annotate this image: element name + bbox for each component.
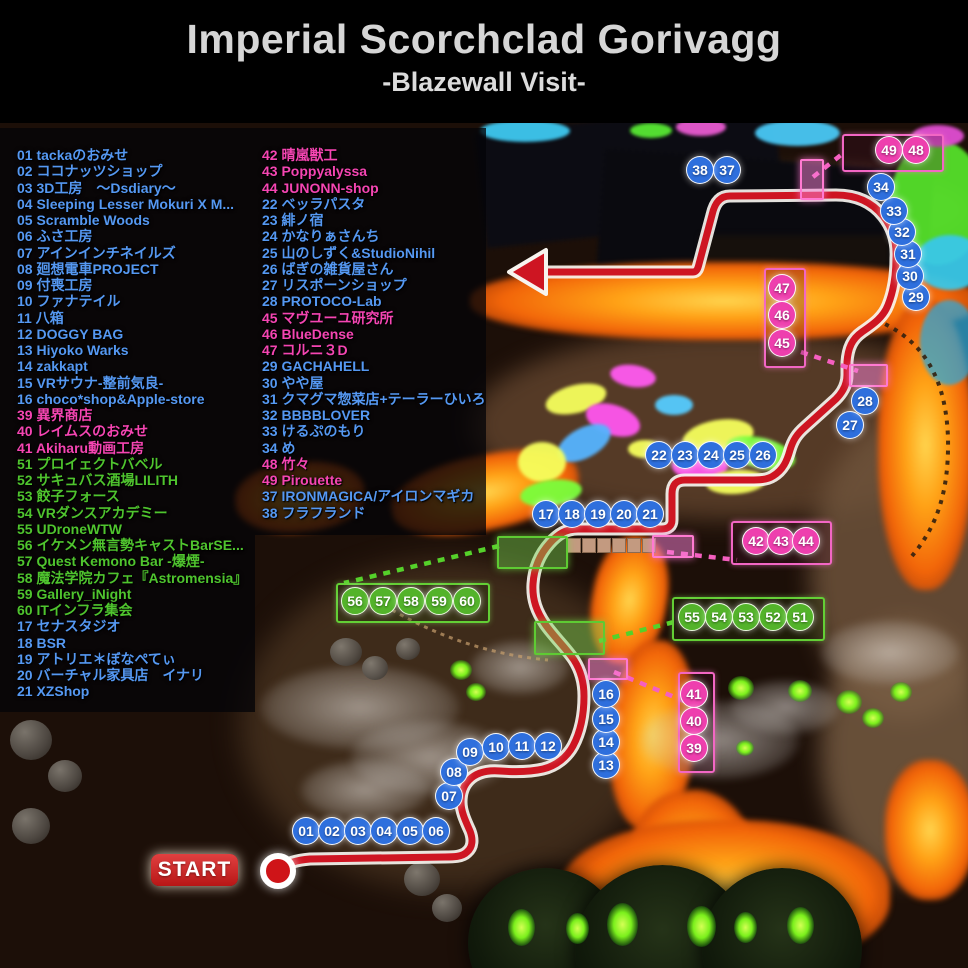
map-marker-33[interactable]: 33 [880, 197, 908, 225]
title-bar: Imperial Scorchclad Gorivagg -Blazewall … [0, 0, 968, 123]
page-subtitle: -Blazewall Visit- [0, 63, 968, 98]
legend-item-08: 08 廻想電車PROJECT [17, 261, 247, 277]
map-marker-37[interactable]: 37 [713, 156, 741, 184]
map-marker-52[interactable]: 52 [759, 603, 787, 631]
legend-item-09: 09 付喪工房 [17, 277, 247, 293]
legend-item-16: 16 choco*shop&Apple-store [17, 391, 247, 407]
legend-item-23: 23 緋ノ宿 [262, 212, 486, 228]
legend-item-42: 42 晴嵐獣工 [262, 147, 486, 163]
map-marker-12[interactable]: 12 [534, 732, 562, 760]
legend-item-56: 56 イケメン無言勢キャストBarSE... [17, 537, 247, 553]
legend-item-11: 11 八箱 [17, 310, 247, 326]
map-marker-26[interactable]: 26 [749, 441, 777, 469]
map-marker-16[interactable]: 16 [592, 680, 620, 708]
legend-item-43: 43 Poppyalyssa [262, 163, 486, 179]
map-marker-28[interactable]: 28 [851, 387, 879, 415]
legend-item-20: 20 バーチャル家具店 イナリ [17, 667, 247, 683]
legend-item-28: 28 PROTOCO-Lab [262, 293, 486, 309]
legend-item-45: 45 マヴユーユ研究所 [262, 310, 486, 326]
map-marker-27[interactable]: 27 [836, 411, 864, 439]
legend-item-30: 30 やや屋 [262, 375, 486, 391]
map-marker-24[interactable]: 24 [697, 441, 725, 469]
map-marker-51[interactable]: 51 [786, 603, 814, 631]
legend-item-38: 38 フラフランド [262, 505, 486, 521]
legend-item-02: 02 ココナッツショップ [17, 163, 247, 179]
legend-item-26: 26 ばぎの雑貨屋さん [262, 261, 486, 277]
map-marker-23[interactable]: 23 [671, 441, 699, 469]
legend-item-29: 29 GACHAHELL [262, 358, 486, 374]
legend-item-59: 59 Gallery_iNight [17, 586, 247, 602]
legend-item-22: 22 ベッラパスタ [262, 196, 486, 212]
railway-track [876, 320, 948, 556]
legend-column-right: 42 晴嵐獣工43 Poppyalyssa44 JUNONN-shop22 ベッ… [262, 147, 486, 521]
map-marker-41[interactable]: 41 [680, 680, 708, 708]
map-marker-21[interactable]: 21 [636, 500, 664, 528]
map-marker-25[interactable]: 25 [723, 441, 751, 469]
legend-item-49: 49 Pirouette [262, 472, 486, 488]
legend-item-14: 14 zakkapt [17, 358, 247, 374]
legend-item-18: 18 BSR [17, 635, 247, 651]
map-marker-43[interactable]: 43 [767, 527, 795, 555]
map-marker-06[interactable]: 06 [422, 817, 450, 845]
map-marker-10[interactable]: 10 [482, 733, 510, 761]
map-marker-47[interactable]: 47 [768, 274, 796, 302]
map-marker-55[interactable]: 55 [678, 603, 706, 631]
map-marker-22[interactable]: 22 [645, 441, 673, 469]
map-marker-34[interactable]: 34 [867, 173, 895, 201]
legend-item-48: 48 竹々 [262, 456, 486, 472]
legend-item-53: 53 餃子フォース [17, 488, 247, 504]
legend-item-40: 40 レイムスのおみせ [17, 423, 247, 439]
portal-28[interactable] [849, 364, 888, 387]
map-marker-39[interactable]: 39 [680, 734, 708, 762]
map-marker-54[interactable]: 54 [705, 603, 733, 631]
map-marker-20[interactable]: 20 [610, 500, 638, 528]
map-marker-48[interactable]: 48 [902, 136, 930, 164]
map-marker-60[interactable]: 60 [453, 587, 481, 615]
map-marker-09[interactable]: 09 [456, 738, 484, 766]
legend-item-01: 01 tackaのおみせ [17, 147, 247, 163]
legend-item-25: 25 山のしずく&StudioNihil [262, 245, 486, 261]
map-marker-56[interactable]: 56 [341, 587, 369, 615]
map-marker-07[interactable]: 07 [435, 782, 463, 810]
legend-item-19: 19 アトリエ＊ぼなぺてぃ [17, 651, 247, 667]
legend-item-10: 10 ファナテイル [17, 293, 247, 309]
portal-mid[interactable] [652, 535, 694, 558]
legend-item-54: 54 VRダンスアカデミー [17, 505, 247, 521]
map-marker-19[interactable]: 19 [584, 500, 612, 528]
legend-item-57: 57 Quest Kemono Bar -爆煙- [17, 553, 247, 569]
legend-item-58: 58 魔法学院カフェ『Astromensia』 [17, 570, 247, 586]
map-marker-46[interactable]: 46 [768, 301, 796, 329]
legend-item-51: 51 プロイェクトバベル [17, 456, 247, 472]
legend-item-21: 21 XZShop [17, 683, 247, 699]
map-marker-01[interactable]: 01 [292, 817, 320, 845]
portal-top[interactable] [800, 159, 824, 200]
legend-item-60: 60 ITインフラ集会 [17, 602, 247, 618]
map-marker-03[interactable]: 03 [344, 817, 372, 845]
map-marker-02[interactable]: 02 [318, 817, 346, 845]
portal-green-2[interactable] [534, 621, 605, 655]
map-marker-59[interactable]: 59 [425, 587, 453, 615]
legend-item-13: 13 Hiyoko Warks [17, 342, 247, 358]
legend-item-46: 46 BlueDense [262, 326, 486, 342]
legend-item-32: 32 BBBBLOVER [262, 407, 486, 423]
map-marker-49[interactable]: 49 [875, 136, 903, 164]
map-marker-15[interactable]: 15 [592, 705, 620, 733]
map-marker-57[interactable]: 57 [369, 587, 397, 615]
map-marker-40[interactable]: 40 [680, 707, 708, 735]
legend-item-47: 47 コルニ３D [262, 342, 486, 358]
legend-item-37: 37 IRONMAGICA/アイロンマギカ [262, 488, 486, 504]
map-marker-04[interactable]: 04 [370, 817, 398, 845]
legend-item-12: 12 DOGGY BAG [17, 326, 247, 342]
event-map: 0102030405060708091011121314151617181920… [0, 0, 968, 968]
map-marker-05[interactable]: 05 [396, 817, 424, 845]
map-marker-11[interactable]: 11 [508, 732, 536, 760]
legend-item-17: 17 セナスタジオ [17, 618, 247, 634]
legend-item-03: 03 3D工房 ～Dsdiary～ [17, 180, 247, 196]
map-marker-17[interactable]: 17 [532, 500, 560, 528]
map-marker-38[interactable]: 38 [686, 156, 714, 184]
map-marker-53[interactable]: 53 [732, 603, 760, 631]
legend-item-06: 06 ふさ工房 [17, 228, 247, 244]
map-marker-58[interactable]: 58 [397, 587, 425, 615]
page-title: Imperial Scorchclad Gorivagg [0, 0, 968, 63]
portal-16[interactable] [588, 658, 628, 680]
legend-item-34: 34 め [262, 440, 486, 456]
map-marker-42[interactable]: 42 [742, 527, 770, 555]
legend-item-41: 41 Akiharu動画工房 [17, 440, 247, 456]
map-marker-44[interactable]: 44 [792, 527, 820, 555]
start-button[interactable]: START [151, 854, 238, 886]
legend-item-15: 15 VRサウナ-整前気良- [17, 375, 247, 391]
map-marker-18[interactable]: 18 [558, 500, 586, 528]
portal-green-1[interactable] [497, 536, 568, 569]
legend-item-39: 39 異界商店 [17, 407, 247, 423]
map-marker-45[interactable]: 45 [768, 329, 796, 357]
legend-item-33: 33 けるぷのもり [262, 423, 486, 439]
route-arrowhead [509, 250, 546, 294]
legend-item-07: 07 アインインチネイルズ [17, 245, 247, 261]
portal-connector [599, 622, 674, 641]
legend-item-04: 04 Sleeping Lesser Mokuri X M... [17, 196, 247, 212]
legend-item-05: 05 Scramble Woods [17, 212, 247, 228]
start-point-icon [260, 853, 296, 889]
legend-item-24: 24 かなりぁさんち [262, 228, 486, 244]
legend-item-52: 52 サキュバス酒場LILITH [17, 472, 247, 488]
legend-item-27: 27 リスポーンショップ [262, 277, 486, 293]
legend-item-55: 55 UDroneWTW [17, 521, 247, 537]
legend-item-31: 31 クマグマ惣菜店+テーラーひいろ [262, 391, 486, 407]
legend-column-left: 01 tackaのおみせ02 ココナッツショップ03 3D工房 ～Dsdiary… [17, 147, 247, 700]
portal-connector [344, 546, 499, 583]
legend-item-44: 44 JUNONN-shop [262, 180, 486, 196]
